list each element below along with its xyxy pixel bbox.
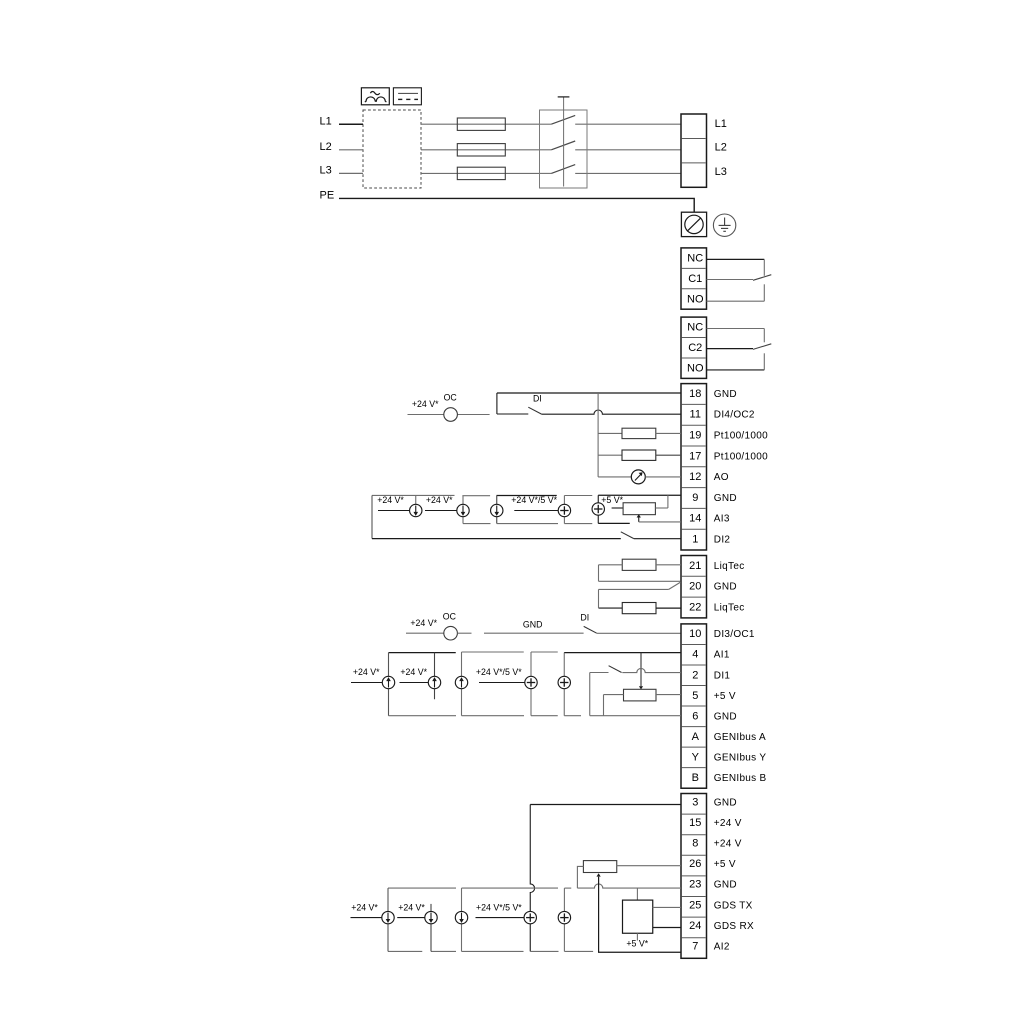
svg-text:18: 18 bbox=[689, 388, 701, 400]
svg-text:20: 20 bbox=[689, 581, 701, 593]
svg-text:3: 3 bbox=[692, 796, 698, 808]
svg-text:+24 V*: +24 V* bbox=[410, 618, 437, 628]
svg-text:GND: GND bbox=[523, 619, 543, 629]
svg-text:+24 V: +24 V bbox=[714, 818, 742, 829]
svg-text:7: 7 bbox=[692, 941, 698, 953]
svg-text:DI1: DI1 bbox=[714, 670, 731, 681]
svg-text:L1: L1 bbox=[320, 116, 332, 128]
svg-text:A: A bbox=[692, 731, 700, 743]
svg-text:8: 8 bbox=[692, 838, 698, 850]
svg-text:GND: GND bbox=[714, 880, 737, 891]
svg-text:GENIbus A: GENIbus A bbox=[714, 732, 766, 743]
svg-text:4: 4 bbox=[692, 649, 698, 661]
svg-text:25: 25 bbox=[689, 899, 701, 911]
svg-text:26: 26 bbox=[689, 858, 701, 870]
svg-text:B: B bbox=[692, 772, 699, 784]
svg-text:AO: AO bbox=[714, 472, 729, 483]
svg-text:GENIbus Y: GENIbus Y bbox=[714, 752, 767, 763]
svg-text:DI4/OC2: DI4/OC2 bbox=[714, 410, 755, 421]
svg-text:DI2: DI2 bbox=[714, 535, 731, 546]
svg-text:19: 19 bbox=[689, 430, 701, 442]
svg-text:LiqTec: LiqTec bbox=[714, 602, 745, 613]
svg-text:GND: GND bbox=[714, 389, 737, 400]
svg-text:1: 1 bbox=[692, 534, 698, 546]
svg-text:AI3: AI3 bbox=[714, 514, 730, 525]
svg-text:GDS TX: GDS TX bbox=[714, 900, 753, 911]
svg-text:L3: L3 bbox=[715, 166, 727, 178]
svg-text:+5 V: +5 V bbox=[714, 691, 736, 702]
svg-text:12: 12 bbox=[689, 471, 701, 483]
svg-text:DI: DI bbox=[580, 612, 589, 622]
svg-text:+24 V*/5 V*: +24 V*/5 V* bbox=[476, 667, 522, 677]
svg-text:AI2: AI2 bbox=[714, 942, 730, 953]
svg-text:+24 V*/5 V*: +24 V*/5 V* bbox=[476, 902, 522, 912]
svg-text:24: 24 bbox=[689, 920, 701, 932]
svg-text:GDS RX: GDS RX bbox=[714, 921, 754, 932]
svg-text:17: 17 bbox=[689, 450, 701, 462]
svg-text:Pt100/1000: Pt100/1000 bbox=[714, 451, 768, 462]
svg-text:NC: NC bbox=[687, 252, 703, 264]
svg-text:5: 5 bbox=[692, 690, 698, 702]
svg-text:14: 14 bbox=[689, 513, 701, 525]
svg-text:+24 V*: +24 V* bbox=[353, 667, 380, 677]
svg-text:L3: L3 bbox=[320, 165, 332, 177]
svg-text:11: 11 bbox=[690, 409, 701, 421]
svg-text:+24 V*: +24 V* bbox=[398, 902, 425, 912]
svg-text:DI: DI bbox=[533, 393, 542, 403]
svg-text:PE: PE bbox=[320, 190, 335, 202]
svg-text:2: 2 bbox=[692, 669, 698, 681]
svg-text:+5 V*: +5 V* bbox=[601, 495, 623, 505]
svg-text:6: 6 bbox=[692, 710, 698, 722]
svg-text:+24 V*/5 V*: +24 V*/5 V* bbox=[511, 495, 557, 505]
svg-text:GND: GND bbox=[714, 797, 737, 808]
svg-text:Pt100/1000: Pt100/1000 bbox=[714, 431, 768, 442]
svg-text:+24 V*: +24 V* bbox=[351, 902, 378, 912]
svg-text:22: 22 bbox=[689, 601, 701, 613]
svg-text:21: 21 bbox=[689, 560, 701, 572]
svg-text:DI3/OC1: DI3/OC1 bbox=[714, 629, 755, 640]
svg-text:+24 V*: +24 V* bbox=[377, 495, 404, 505]
svg-text:L2: L2 bbox=[320, 141, 332, 153]
svg-text:GENIbus B: GENIbus B bbox=[714, 773, 767, 784]
svg-text:GND: GND bbox=[714, 493, 737, 504]
svg-text:C2: C2 bbox=[688, 342, 702, 354]
svg-text:15: 15 bbox=[689, 817, 701, 829]
svg-text:GND: GND bbox=[714, 582, 737, 593]
svg-text:LiqTec: LiqTec bbox=[714, 561, 745, 572]
svg-text:NO: NO bbox=[687, 362, 704, 374]
svg-text:+5 V*: +5 V* bbox=[626, 939, 648, 949]
svg-text:L1: L1 bbox=[715, 118, 727, 130]
svg-text:Y: Y bbox=[692, 751, 700, 763]
svg-text:+5 V: +5 V bbox=[714, 859, 736, 870]
svg-text:10: 10 bbox=[689, 628, 701, 640]
svg-text:AI1: AI1 bbox=[714, 650, 730, 661]
svg-text:OC: OC bbox=[443, 612, 457, 622]
svg-text:OC: OC bbox=[444, 393, 458, 403]
svg-text:+24 V: +24 V bbox=[714, 839, 742, 850]
svg-text:9: 9 bbox=[692, 492, 698, 504]
svg-text:23: 23 bbox=[689, 879, 701, 891]
svg-text:NC: NC bbox=[687, 322, 703, 334]
svg-text:+24 V*: +24 V* bbox=[426, 495, 453, 505]
svg-text:C1: C1 bbox=[688, 273, 702, 285]
svg-text:GND: GND bbox=[714, 711, 737, 722]
svg-text:+24 V*: +24 V* bbox=[400, 667, 427, 677]
svg-text:NO: NO bbox=[687, 293, 704, 305]
svg-text:+24 V*: +24 V* bbox=[412, 399, 439, 409]
svg-text:L2: L2 bbox=[715, 142, 727, 154]
